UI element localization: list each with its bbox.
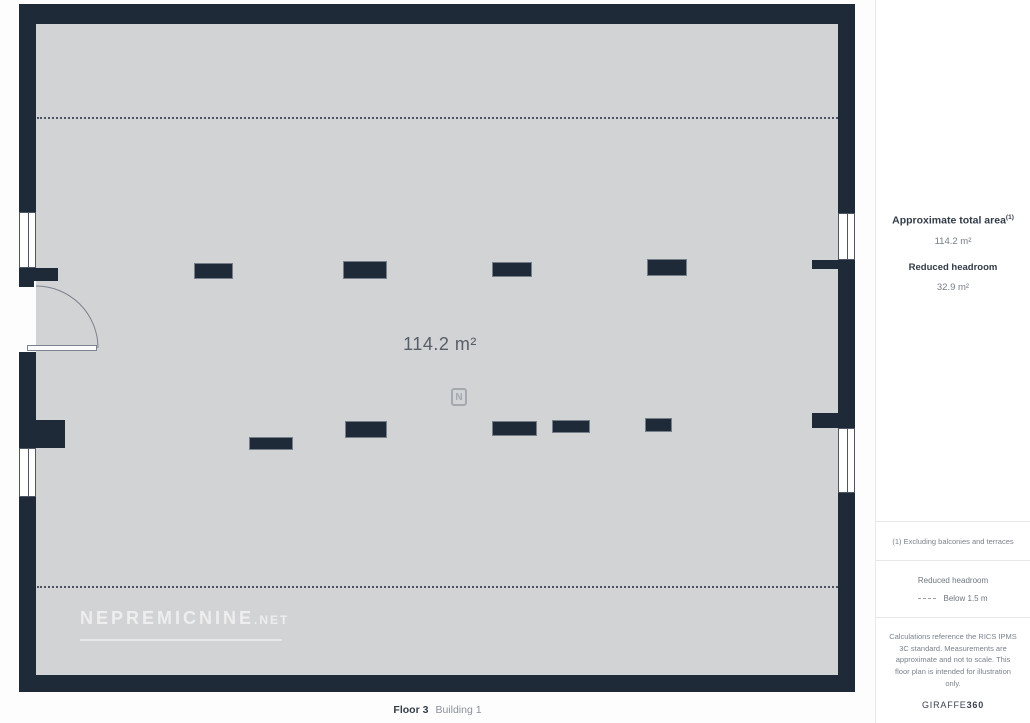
wall-segment bbox=[19, 675, 855, 692]
total-area-footnote-marker: (1) bbox=[1006, 214, 1014, 221]
column bbox=[492, 421, 537, 436]
watermark-text: NEPREMICNINE bbox=[80, 608, 254, 628]
wall-segment bbox=[812, 413, 855, 428]
total-area-label: Approximate total area bbox=[892, 215, 1006, 227]
legend-value: Below 1.5 m bbox=[943, 594, 987, 603]
column bbox=[492, 262, 532, 277]
wall-segment bbox=[838, 493, 855, 692]
legend-box: Reduced headroom Below 1.5 m bbox=[876, 561, 1030, 618]
dashed-line-icon bbox=[918, 598, 936, 599]
watermark-underline bbox=[80, 639, 282, 641]
column bbox=[194, 263, 233, 279]
total-area-value: 114.2 m² bbox=[876, 236, 1030, 247]
column bbox=[249, 437, 293, 450]
reduced-headroom-value: 32.9 m² bbox=[876, 282, 1030, 293]
window bbox=[838, 428, 855, 493]
wall-segment bbox=[838, 4, 855, 213]
watermark-suffix: .NET bbox=[254, 613, 289, 627]
wall-segment bbox=[19, 497, 36, 692]
info-sidebar: Approximate total area(1) 114.2 m² Reduc… bbox=[875, 0, 1030, 723]
disclaimer-box: Calculations reference the RICS IPMS 3C … bbox=[876, 618, 1030, 723]
area-summary: Approximate total area(1) 114.2 m² Reduc… bbox=[876, 214, 1030, 293]
watermark: NEPREMICNINE.NET bbox=[80, 608, 289, 629]
footnote-text: (1) Excluding balconies and terraces bbox=[892, 537, 1013, 546]
door-leaf bbox=[27, 345, 97, 351]
plan-caption: Floor 3Building 1 bbox=[0, 704, 875, 716]
brand-number: 360 bbox=[967, 700, 984, 710]
giraffe360-logo: GIRAFFE360 bbox=[922, 700, 984, 710]
legend-title: Reduced headroom bbox=[918, 576, 988, 585]
room-area-label: 114.2 m² bbox=[340, 334, 540, 355]
wall-segment bbox=[838, 260, 855, 413]
reduced-headroom-line-top bbox=[37, 117, 838, 119]
building-label: Building 1 bbox=[435, 704, 481, 716]
reduced-headroom-title: Reduced headroom bbox=[876, 262, 1030, 273]
wall-segment bbox=[19, 4, 855, 24]
column bbox=[345, 421, 387, 438]
brand-name: GIRAFFE bbox=[922, 700, 967, 710]
window-mullion bbox=[28, 213, 29, 267]
column bbox=[552, 420, 590, 433]
total-area-title: Approximate total area(1) bbox=[876, 214, 1030, 227]
column bbox=[343, 261, 387, 279]
column bbox=[645, 418, 672, 432]
door-swing-arc bbox=[19, 280, 104, 354]
window-mullion bbox=[28, 449, 29, 496]
window bbox=[838, 213, 855, 260]
wall-segment bbox=[19, 420, 65, 448]
window-mullion bbox=[847, 429, 848, 492]
disclaimer-text: Calculations reference the RICS IPMS 3C … bbox=[889, 631, 1017, 689]
reduced-headroom-line-bottom bbox=[37, 586, 838, 588]
north-compass-icon: N bbox=[451, 388, 467, 406]
window bbox=[19, 212, 36, 268]
column bbox=[647, 259, 687, 276]
legend-row: Below 1.5 m bbox=[918, 594, 987, 603]
compass-letter: N bbox=[455, 392, 462, 403]
floor-label: Floor 3 bbox=[393, 704, 428, 716]
window bbox=[19, 448, 36, 497]
floor-plan: NEPREMICNINE.NET 114.2 m² N Floor 3Build… bbox=[0, 0, 875, 723]
wall-segment bbox=[19, 4, 36, 212]
window-mullion bbox=[847, 214, 848, 259]
footnote-box: (1) Excluding balconies and terraces bbox=[876, 521, 1030, 561]
